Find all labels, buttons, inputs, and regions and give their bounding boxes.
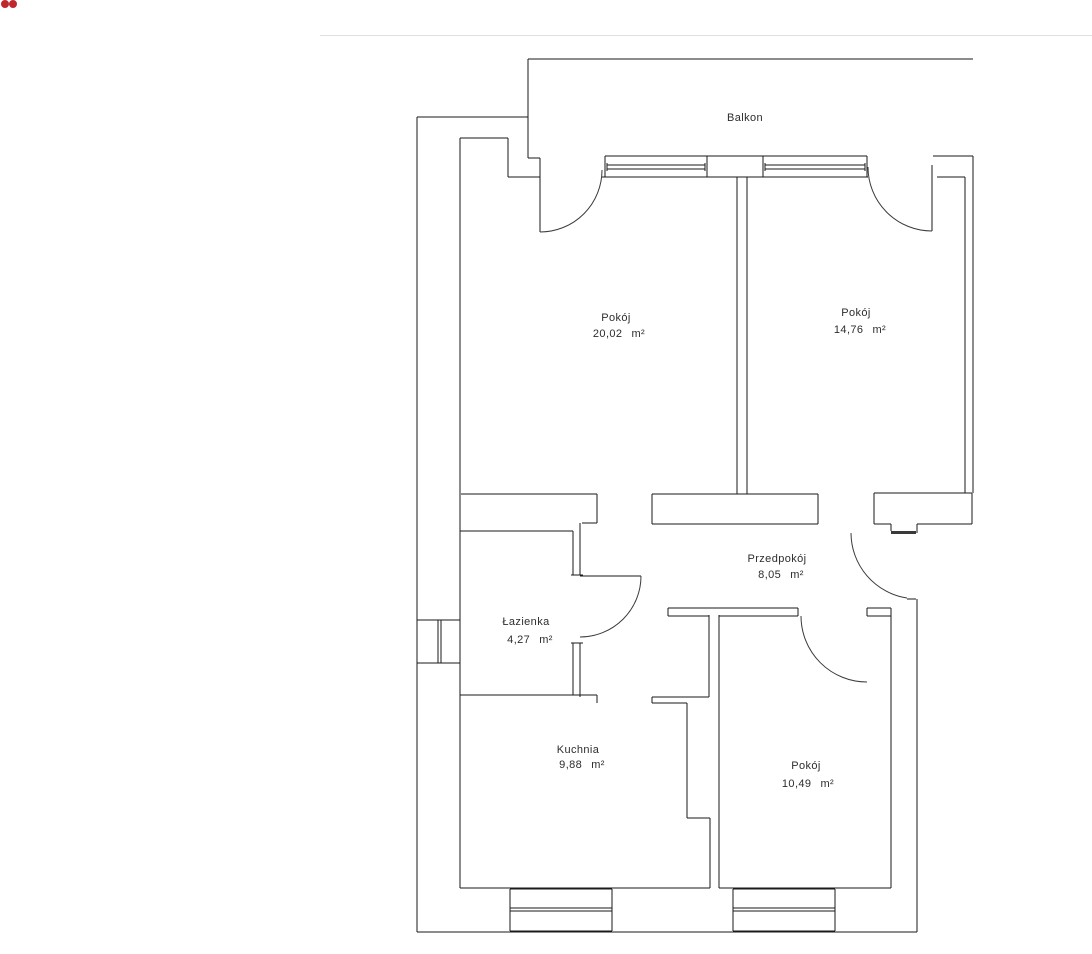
entrance-threshold [891,531,916,534]
room-name-pokoj-2: Pokój [841,307,871,319]
room-name-kuchnia: Kuchnia [557,744,600,756]
room-area-unit: m² [631,328,645,340]
room-area-value: 10,49 [782,778,812,790]
room-area-pokoj-1: 20,02m² [593,328,645,340]
room-area-value: 20,02 [593,328,623,340]
room-name-lazienka: Łazienka [502,616,549,628]
room-area-value: 9,88 [559,759,582,771]
room-area-kuchnia: 9,88m² [559,759,605,771]
room-name-pokoj-3: Pokój [791,760,821,772]
room-area-unit: m² [872,324,886,336]
room-area-value: 4,27 [507,634,530,646]
room-area-przedpokoj: 8,05m² [758,569,804,581]
room-area-lazienka: 4,27m² [507,634,553,646]
floorplan-drawing [0,0,1092,954]
room-area-unit: m² [539,634,553,646]
floorplan-page: Balkon Pokój 20,02m² Pokój 14,76m² Przed… [0,0,1092,954]
room-area-unit: m² [591,759,605,771]
balcony-label: Balkon [727,112,763,124]
room-name-przedpokoj: Przedpokój [747,553,806,565]
door-swing-arcs [540,167,932,682]
room-area-pokoj-3: 10,49m² [782,778,834,790]
room-name-pokoj-1: Pokój [601,312,631,324]
room-area-unit: m² [820,778,834,790]
wall-lines [417,59,973,932]
room-area-unit: m² [790,569,804,581]
room-area-pokoj-2: 14,76m² [834,324,886,336]
room-area-value: 8,05 [758,569,781,581]
room-area-value: 14,76 [834,324,864,336]
